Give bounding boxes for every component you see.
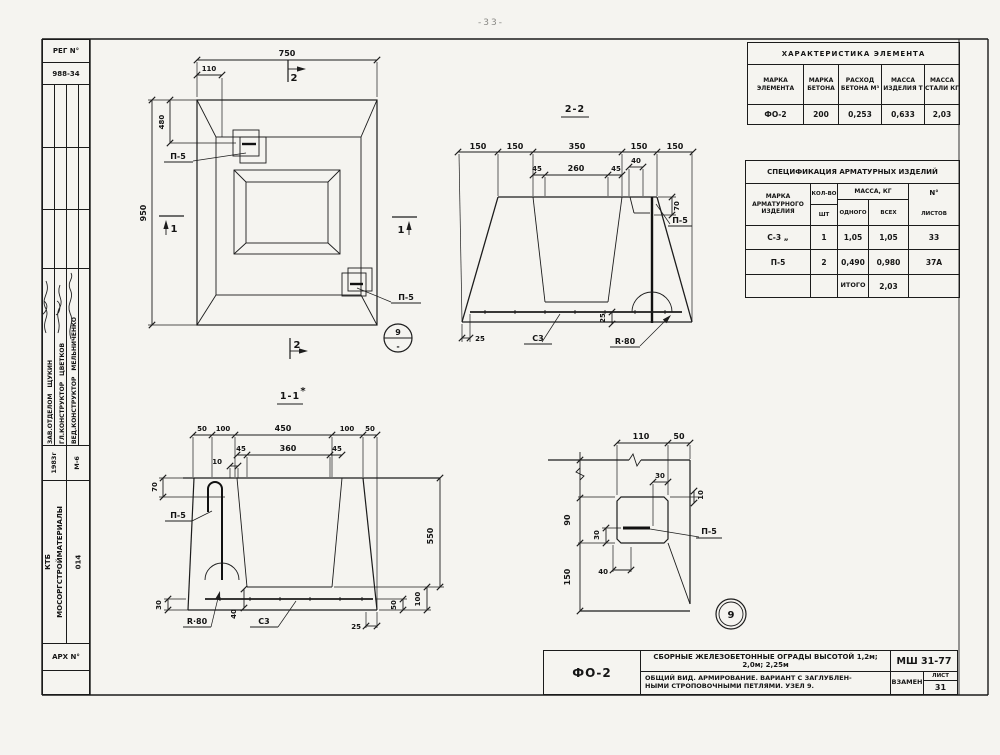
org-name-line1: КТБ [43, 506, 55, 618]
spec-row: П-5 2 0,490 0,980 37А [746, 249, 959, 274]
dim-label: 25 [351, 623, 361, 631]
year-cell: 1983г [43, 446, 67, 480]
dim-label: 100 [414, 592, 422, 607]
dim-label: 10 [212, 458, 222, 466]
dim-label: 45 [532, 165, 542, 173]
spec-col-header: МАССА, КГ [838, 184, 908, 200]
dim-label: 30 [155, 600, 163, 610]
radius-label: R·80 [615, 337, 636, 346]
sheet-label: ЛИСТ [924, 672, 957, 681]
arch-number-label: АРХ N° [43, 644, 89, 671]
plan-detail-ref-number: 9 [395, 328, 401, 337]
char-col-header: РАСХОД БЕТОНА М³ [839, 65, 882, 104]
spec-col-mass: МАССА, КГ ОДНОГО ВСЕХ [838, 184, 909, 225]
plan-note-mark: * [300, 386, 306, 397]
char-cell: 0,253 [839, 105, 882, 124]
dim-label: 550 [426, 527, 435, 544]
char-col-header: МАССА СТАЛИ КГ [925, 65, 959, 104]
spec-col-header: N° [909, 184, 959, 202]
spec-cell: 1,05 [869, 226, 909, 249]
section-1-1-title: 1-1 [280, 391, 300, 402]
spec-cell-empty [746, 275, 811, 297]
series-title: СБОРНЫЕ ЖЕЛЕЗОБЕТОННЫЕ ОГРАДЫ ВЫСОТОЙ 1,… [641, 651, 890, 672]
group-label: М-6 [74, 456, 82, 470]
spec-cell: 0,490 [838, 250, 869, 274]
char-table-header-row: МАРКА ЭЛЕМЕНТА МАРКА БЕТОНА РАСХОД БЕТОН… [748, 65, 959, 105]
dim-label: 45 [236, 445, 246, 453]
char-col-header: МАРКА БЕТОНА [804, 65, 839, 104]
year-label: 1983г [51, 452, 59, 474]
org-row: КТБ МОСОРГСТРОЙМАТЕРИАЛЫ 014 [43, 481, 89, 644]
org-name-line2: МОСОРГСТРОЙМАТЕРИАЛЫ [55, 506, 67, 618]
spec-cell: 1 [811, 226, 838, 249]
stamp-divider [43, 268, 89, 269]
spec-total-row: ИТОГО 2,03 [746, 274, 959, 297]
spec-cell: 0,980 [869, 250, 909, 274]
mesh-label: С3 [532, 334, 543, 343]
dim-label: 25 [475, 335, 485, 343]
radius-label: R·80 [187, 617, 208, 626]
stamp-divider [43, 209, 89, 210]
mesh-label: С3 [258, 617, 269, 626]
dim-label: 90 [563, 514, 572, 526]
title-block: ФО-2 СБОРНЫЕ ЖЕЛЕЗОБЕТОННЫЕ ОГРАДЫ ВЫСОТ… [543, 650, 958, 695]
spec-col-header: КОЛ-ВО [811, 184, 837, 205]
spec-cell: 37А [909, 250, 959, 274]
spec-col-header: ВСЕХ [869, 200, 908, 225]
replaced-label: ВЗАМЕН [891, 672, 924, 694]
dim-label: 360 [280, 444, 297, 453]
char-col-header: МАССА ИЗДЕЛИЯ Т [882, 65, 925, 104]
left-stamp-column: РЕГ N° 988-34 ЗАВ.ОТДЕЛОМ ЩУКИН ГЛ.КОНСТ… [42, 39, 90, 695]
signer-role: ГЛ.КОНСТРУКТОР [59, 382, 66, 444]
plan-loop-label-top: П-5 [170, 152, 186, 161]
char-col-header: МАРКА ЭЛЕМЕНТА [748, 65, 804, 104]
dim-label: 50 [673, 432, 685, 441]
year-row: 1983г М-6 [43, 446, 89, 481]
spec-total-label: ИТОГО [838, 275, 869, 297]
spec-table-title: СПЕЦИФИКАЦИЯ АРМАТУРНЫХ ИЗДЕЛИЙ [746, 161, 959, 184]
stamp-divider [43, 147, 89, 148]
spec-col-header: ОДНОГО [838, 200, 869, 225]
dim-label: 110 [633, 432, 650, 441]
spec-cell: 2 [811, 250, 838, 274]
element-mark: ФО-2 [544, 651, 641, 694]
dim-label: 50 [365, 425, 375, 433]
plan-cut-mark-1-left: 1 [171, 224, 178, 235]
group-cell: М-6 [67, 446, 89, 480]
dim-label: 150 [507, 142, 524, 151]
plan-cut-mark-1-right: 1 [398, 225, 405, 236]
empty-cell [43, 671, 89, 694]
dim-label: 150 [631, 142, 648, 151]
dim-label: 70 [151, 482, 159, 492]
spec-col-qty: КОЛ-ВО ШТ [811, 184, 838, 225]
sheet-frame [42, 39, 988, 695]
dim-label: 50 [197, 425, 207, 433]
org-number-cell: 014 [67, 481, 89, 643]
char-table-title: ХАРАКТЕРИСТИКА ЭЛЕМЕНТА [748, 43, 959, 65]
section-2-2-title: 2-2 [565, 104, 585, 115]
document-number: МШ 31-77 [891, 651, 957, 672]
dim-label: 150 [470, 142, 487, 151]
dim-label: 100 [340, 425, 355, 433]
reg-label: РЕГ N° [43, 40, 89, 63]
signer-name: ЦВЕТКОВ [59, 343, 66, 376]
detail-number: 9 [728, 610, 735, 621]
dim-label: 40 [598, 568, 608, 576]
reg-number: 988-34 [43, 63, 89, 85]
org-number: 014 [74, 555, 82, 570]
signature-icon [39, 275, 53, 337]
signature-icon [64, 271, 78, 343]
plan-dim-loop-offset: 110 [202, 65, 217, 73]
title-block-right: МШ 31-77 ВЗАМЕН ЛИСТ 31 [891, 651, 957, 694]
char-cell: 2,03 [925, 105, 959, 124]
plan-dim-loop-depth: 480 [158, 115, 166, 130]
plan-dim-width: 750 [279, 49, 296, 58]
plan-cut-mark-2-top: 2 [291, 73, 298, 84]
specification-table: СПЕЦИФИКАЦИЯ АРМАТУРНЫХ ИЗДЕЛИЙ МАРКА АР… [745, 160, 960, 298]
spec-cell: 33 [909, 226, 959, 249]
spec-row: С-3 „ 1 1,05 1,05 33 [746, 226, 959, 249]
loop-label: П-5 [672, 216, 688, 225]
signer-role: ВЕД.КОНСТРУКТОР [71, 377, 78, 444]
dim-label: 25 [599, 313, 607, 323]
spec-cell: П-5 [746, 250, 811, 274]
dim-label: 150 [667, 142, 684, 151]
dim-label: 40 [230, 609, 238, 619]
plan-dim-height: 950 [139, 204, 148, 221]
dim-label: 350 [569, 142, 586, 151]
spec-col-header: ШТ [811, 205, 837, 225]
dim-label: 70 [673, 201, 681, 211]
spec-cell-empty [811, 275, 838, 297]
detail-9-view: 90 150 110 50 30 10 30 40 [548, 432, 746, 629]
section-2-2-view: 2-2 150 150 350 150 150 45 260 45 [455, 104, 696, 347]
spec-col-header: МАРКА АРМАТУРНОГО ИЗДЕЛИЯ [746, 184, 811, 225]
spec-col-sheets: N° ЛИСТОВ [909, 184, 959, 225]
plan-loop-label-bottom: П-5 [398, 293, 414, 302]
dim-label: 150 [563, 568, 572, 585]
dim-label: 30 [593, 530, 601, 540]
spec-table-header-row: МАРКА АРМАТУРНОГО ИЗДЕЛИЯ КОЛ-ВО ШТ МАСС… [746, 184, 959, 226]
dim-label: 260 [568, 164, 585, 173]
title-block-middle: СБОРНЫЕ ЖЕЛЕЗОБЕТОННЫЕ ОГРАДЫ ВЫСОТОЙ 1,… [641, 651, 891, 694]
sheet-number: 31 [924, 681, 957, 694]
loop-label: П-5 [170, 511, 186, 520]
plan-detail-ref-sheet: - [396, 342, 399, 351]
blueprint-sheet: -33- 750 110 [0, 0, 1000, 755]
dim-label: 100 [216, 425, 231, 433]
loop-label: П-5 [701, 527, 717, 536]
signer-role: ЗАВ.ОТДЕЛОМ [47, 394, 54, 444]
characteristics-table: ХАРАКТЕРИСТИКА ЭЛЕМЕНТА МАРКА ЭЛЕМЕНТА М… [747, 42, 960, 125]
signature-grid: ЗАВ.ОТДЕЛОМ ЩУКИН ГЛ.КОНСТРУКТОР ЦВЕТКОВ… [43, 85, 89, 446]
sheet-description: ОБЩИЙ ВИД. АРМИРОВАНИЕ. ВАРИАНТ С ЗАГЛУБ… [641, 672, 890, 694]
dim-label: 450 [275, 424, 292, 433]
spec-col-header: ЛИСТОВ [909, 202, 959, 225]
char-cell: ФО-2 [748, 105, 804, 124]
dim-label: 10 [697, 490, 705, 500]
spec-cell: С-3 „ [746, 226, 811, 249]
org-cell: КТБ МОСОРГСТРОЙМАТЕРИАЛЫ [43, 481, 67, 643]
char-cell: 200 [804, 105, 839, 124]
spec-cell: 1,05 [838, 226, 869, 249]
spec-cell-empty [909, 275, 959, 297]
char-cell: 0,633 [882, 105, 925, 124]
dim-label: 50 [390, 600, 398, 610]
signer-name: ЩУКИН [47, 360, 54, 388]
sheet-description-line2: НЫМИ СТРОПОВОЧНЫМИ ПЕТЛЯМИ. УЗЕЛ 9. [645, 683, 814, 691]
dim-label: 45 [611, 165, 621, 173]
section-1-1-view: 1-1 50 100 450 100 50 45 360 45 [151, 391, 444, 631]
dim-label: 30 [655, 472, 665, 480]
spec-total-value: 2,03 [869, 275, 909, 297]
char-table-data-row: ФО-2 200 0,253 0,633 2,03 [748, 105, 959, 124]
dim-label: 40 [631, 157, 641, 165]
plan-cut-mark-2-bottom: 2 [294, 340, 301, 351]
plan-view: 750 110 480 950 [139, 49, 421, 397]
dim-label: 45 [332, 445, 342, 453]
